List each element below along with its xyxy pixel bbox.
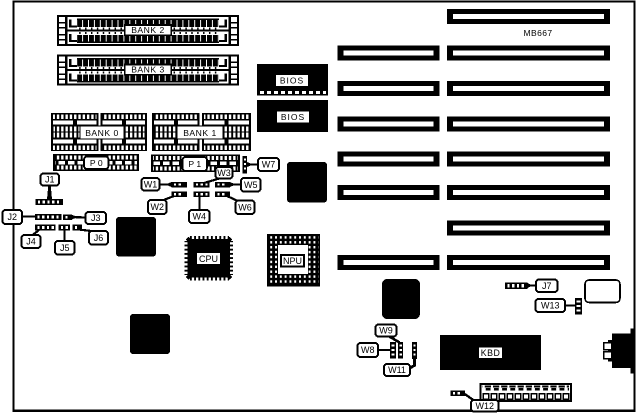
svg-text:BANK 3: BANK 3 (131, 65, 165, 75)
svg-text:P 0: P 0 (90, 158, 103, 168)
svg-text:J7: J7 (542, 281, 552, 291)
svg-text:W8: W8 (361, 345, 375, 355)
svg-text:CPU: CPU (199, 254, 218, 264)
svg-text:W11: W11 (388, 365, 406, 375)
svg-text:KBD: KBD (481, 348, 501, 358)
svg-text:J2: J2 (7, 212, 17, 222)
svg-text:W5: W5 (244, 180, 258, 190)
svg-text:BANK 0: BANK 0 (85, 128, 119, 138)
svg-text:BIOS: BIOS (281, 112, 305, 122)
svg-text:J3: J3 (91, 213, 101, 223)
svg-text:J4: J4 (26, 237, 36, 247)
svg-text:W7: W7 (262, 160, 276, 170)
svg-text:J5: J5 (60, 243, 70, 253)
svg-text:BANK 2: BANK 2 (131, 25, 165, 35)
svg-text:MB667: MB667 (524, 28, 553, 38)
svg-text:W3: W3 (217, 168, 231, 178)
svg-text:BANK 1: BANK 1 (183, 128, 217, 138)
svg-text:W1: W1 (144, 179, 158, 189)
svg-text:W13: W13 (541, 301, 560, 311)
svg-text:J1: J1 (45, 175, 55, 185)
svg-text:P 1: P 1 (188, 159, 201, 169)
svg-text:W2: W2 (151, 202, 165, 212)
svg-text:W6: W6 (238, 202, 252, 212)
svg-text:BIOS: BIOS (280, 76, 304, 86)
svg-text:J6: J6 (94, 233, 104, 243)
svg-text:W12: W12 (475, 401, 494, 411)
svg-text:W9: W9 (379, 326, 393, 336)
svg-text:NPU: NPU (283, 256, 302, 266)
svg-text:W4: W4 (193, 212, 207, 222)
